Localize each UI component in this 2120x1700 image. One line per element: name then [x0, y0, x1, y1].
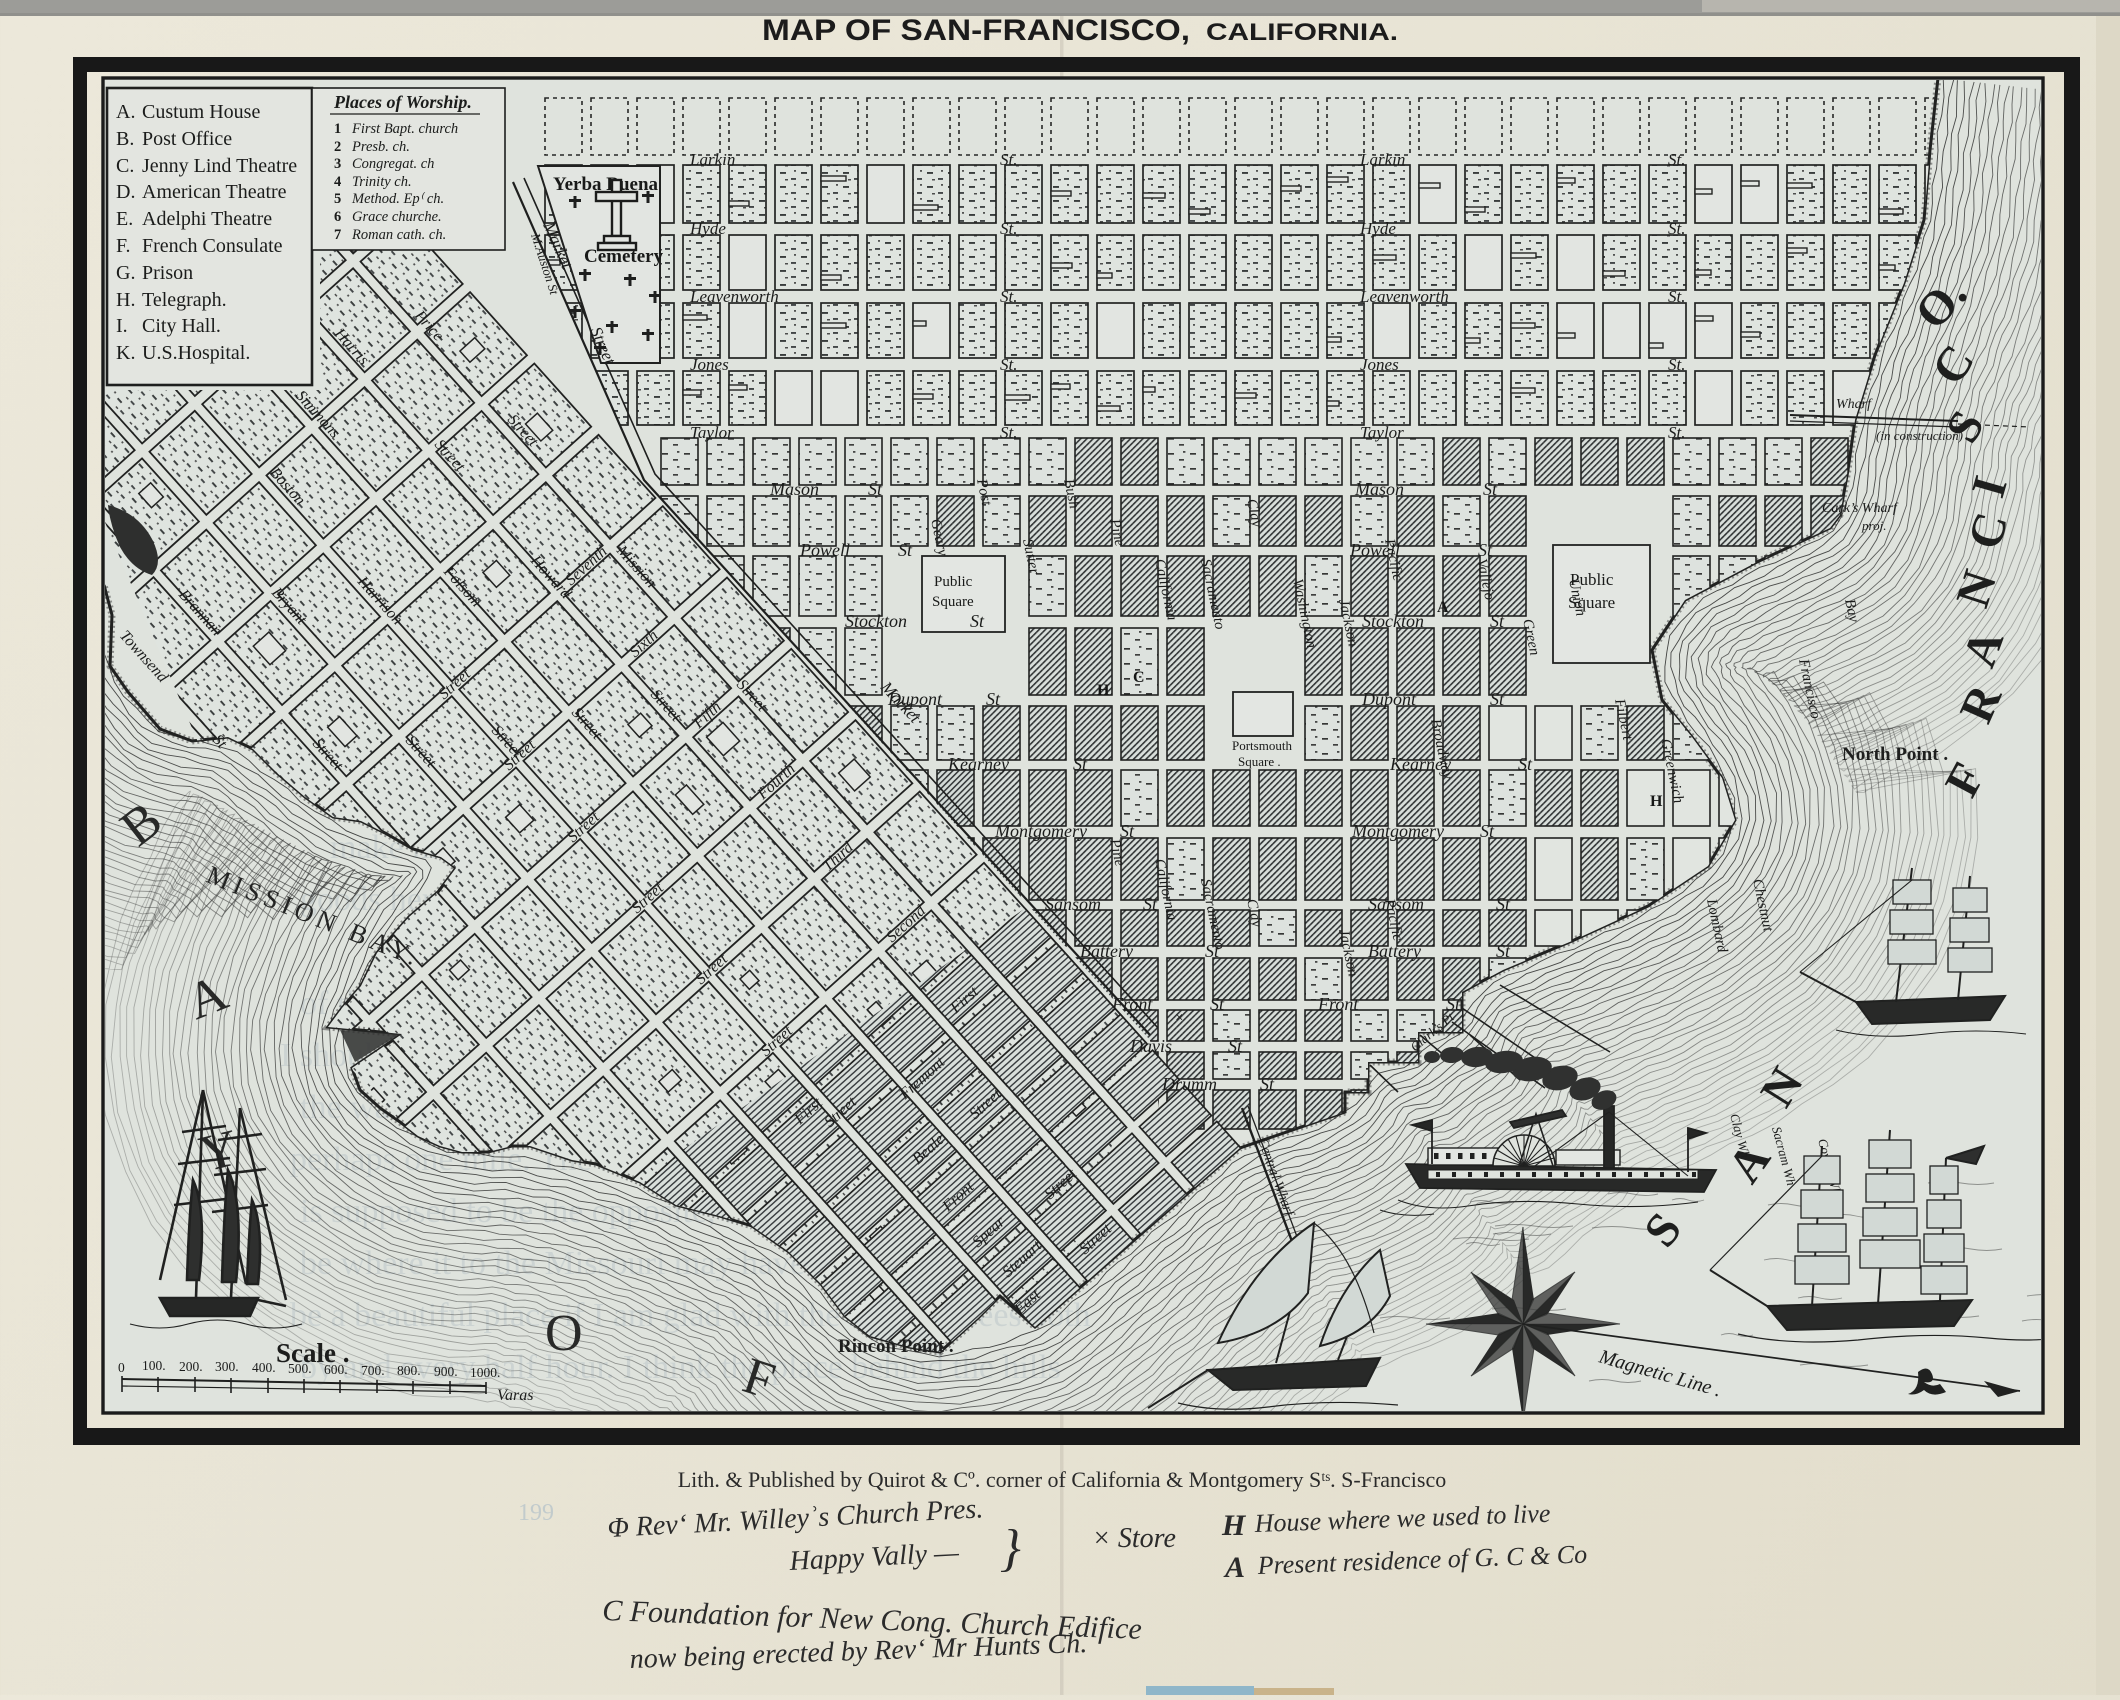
svg-text:MAP OF SAN-FRANCISCO,: MAP OF SAN-FRANCISCO, — [762, 14, 1190, 47]
svg-text:}: } — [1000, 1520, 1021, 1577]
svg-text:House where we used to live: House where we used to live — [1253, 1499, 1551, 1538]
svg-text:A: A — [1223, 1551, 1245, 1584]
svg-text:Present residence of G. C & Co: Present residence of G. C & Co — [1256, 1540, 1587, 1581]
svg-text:Happy Vally —: Happy Vally — — [788, 1537, 961, 1577]
svg-text:199: 199 — [518, 1500, 554, 1526]
svg-text:× Store: × Store — [1092, 1523, 1176, 1554]
svg-text:now being erected by Revʻ Mr H: now being erected by Revʻ Mr Hunts Ch. — [629, 1628, 1088, 1675]
svg-text:CALIFORNIA.: CALIFORNIA. — [1206, 19, 1398, 46]
svg-text:Lith. & Published by Quirot &: Lith. & Published by Quirot & Cº. corner… — [678, 1467, 1447, 1492]
svg-text:H: H — [1221, 1509, 1247, 1542]
svg-text:Φ Revʻ Mr. Willeyʾs Church Pre: Φ Revʻ Mr. Willeyʾs Church Pres. — [607, 1493, 984, 1544]
